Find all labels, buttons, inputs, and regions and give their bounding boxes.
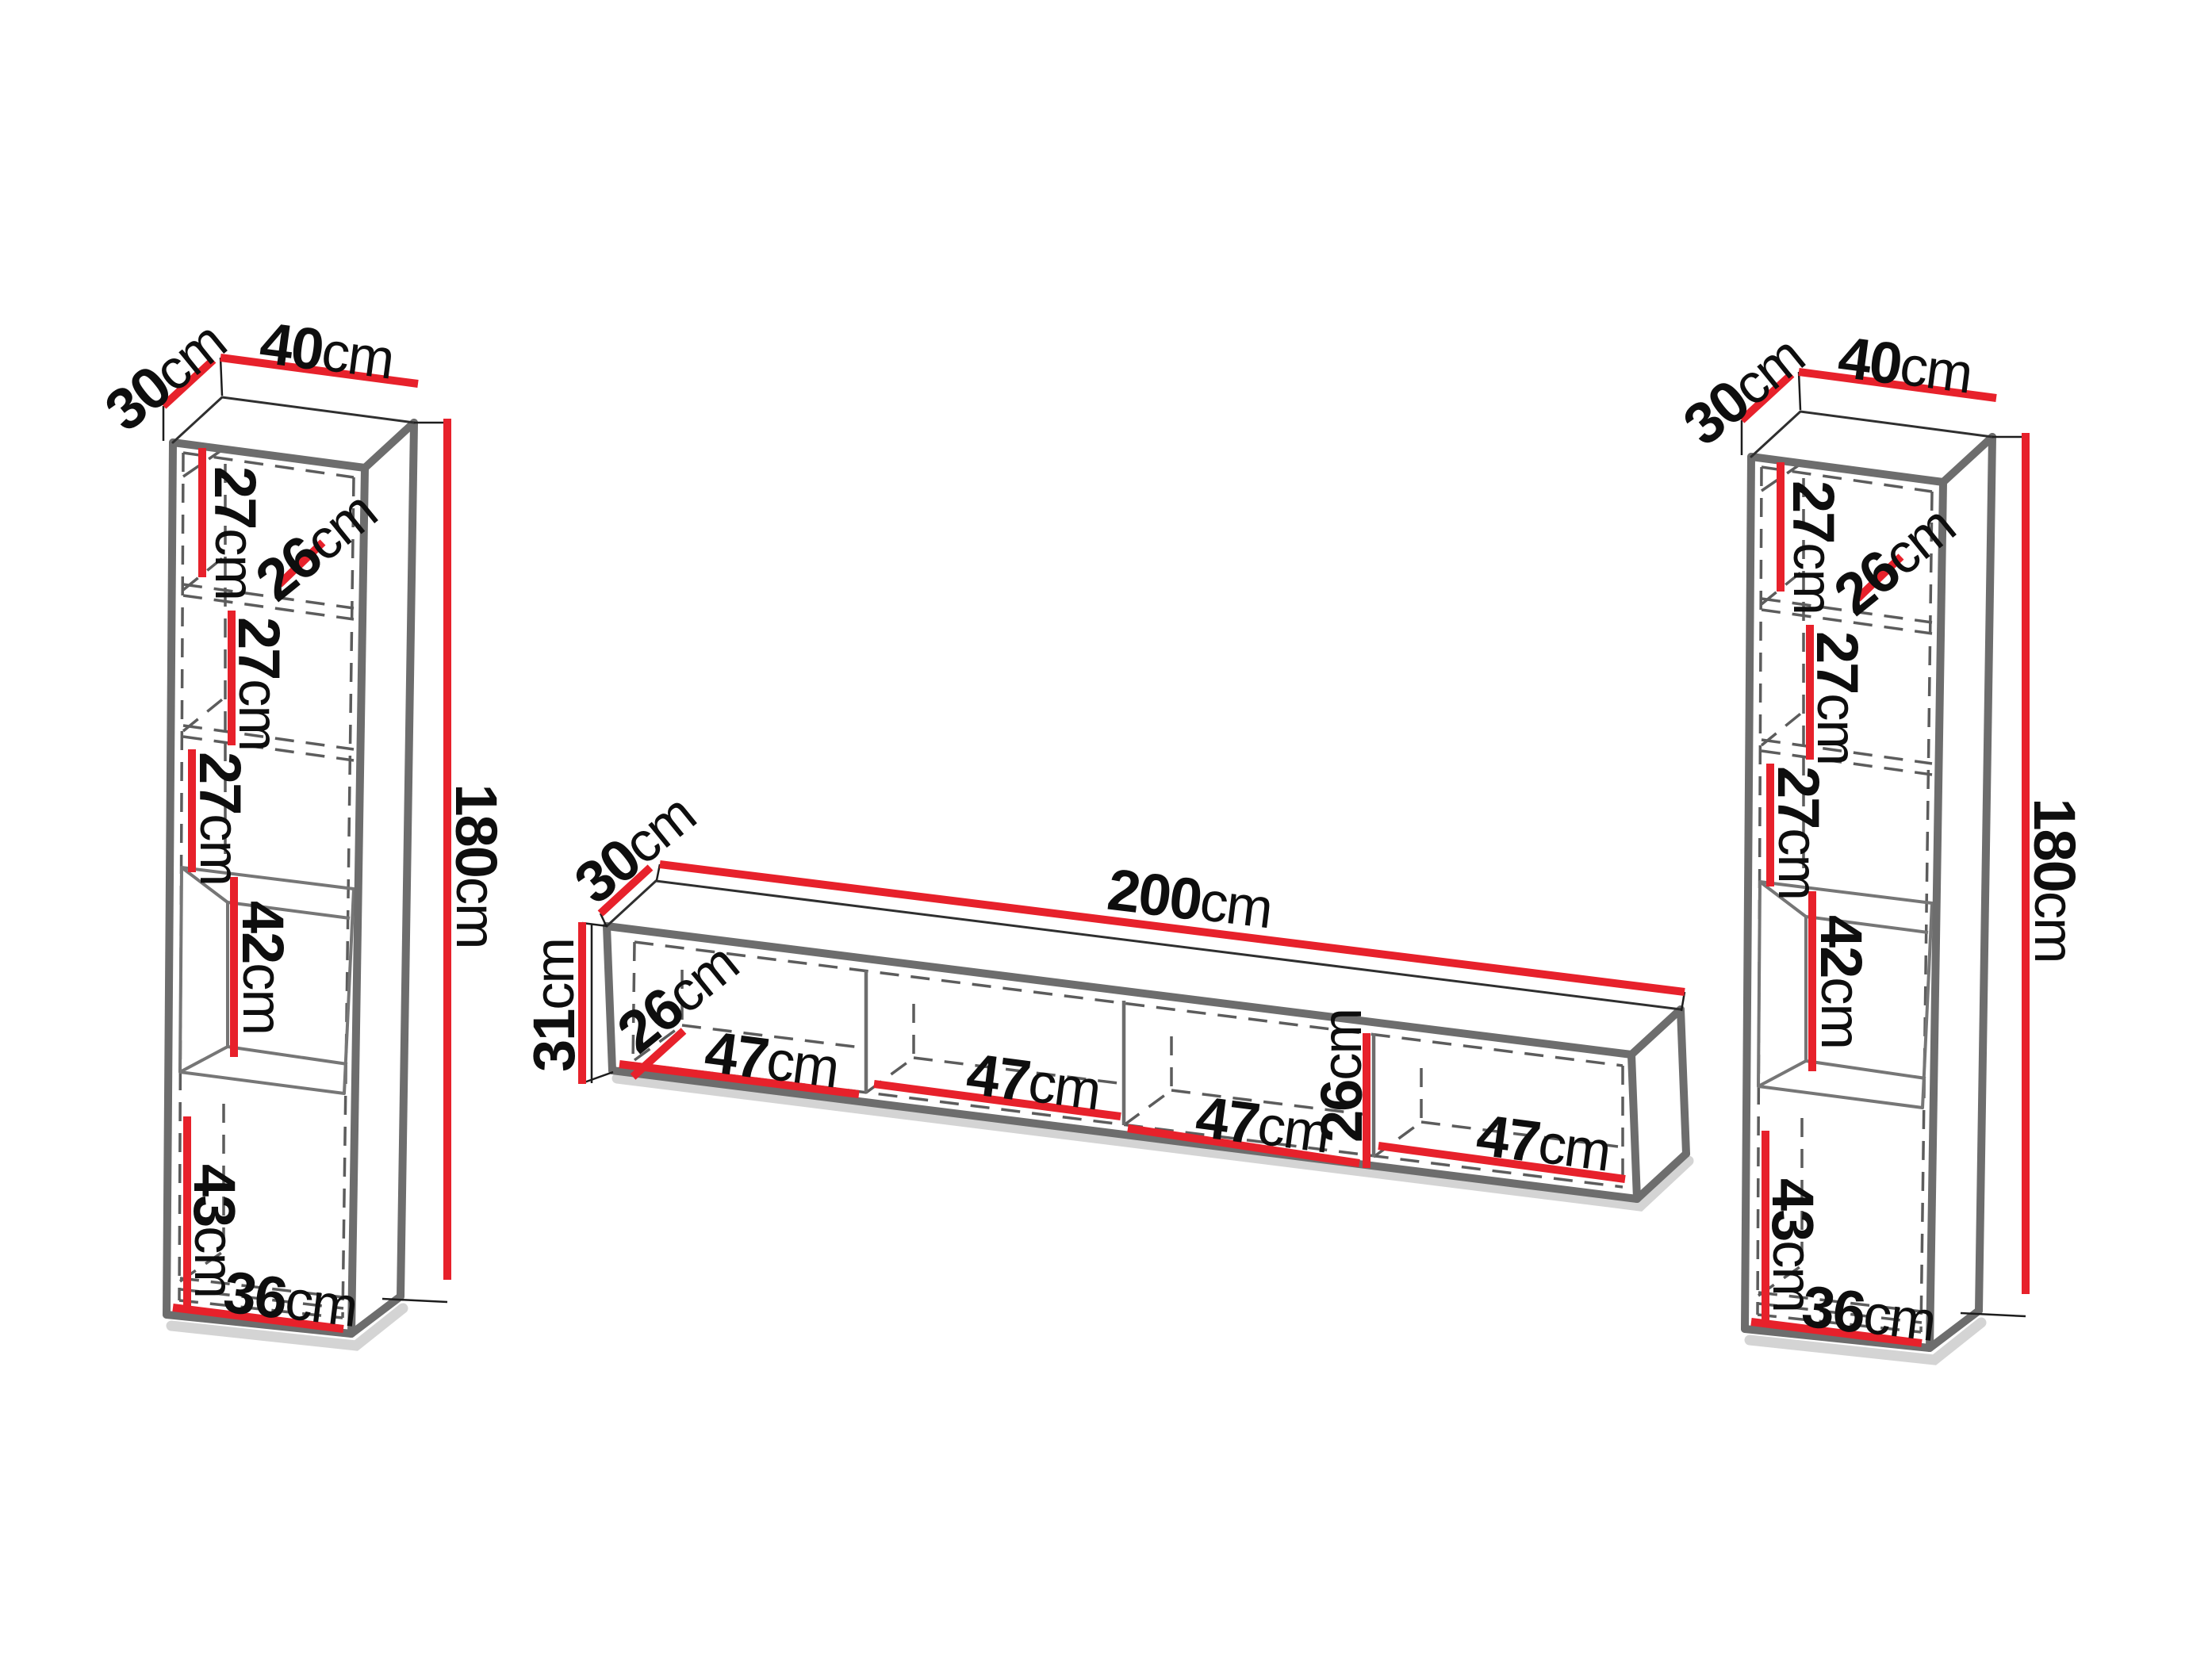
dim-left-second-shelf: 27cm [227,617,293,750]
dim-right-third-shelf: 27cm [1766,766,1832,899]
furniture-dimension-diagram: 30cm 40cm 180cm 27cm 26cm 27cm 27cm 42cm… [0,0,2212,1658]
dim-left-width: 40cm [256,309,397,392]
left-cabinet: 30cm 40cm 180cm 27cm 26cm 27cm 27cm 42cm… [93,308,510,1346]
dim-stand-width: 200cm [1104,856,1275,941]
tv-stand: 30cm 200cm 31cm 26cm 26cm 47cm 47cm 47cm… [521,781,1689,1206]
right-cabinet: 30cm 40cm 180cm 27cm 26cm 27cm 27cm 42cm… [1671,323,2088,1360]
dim-left-open-niche: 42cm [231,901,297,1034]
dim-right-width: 40cm [1834,324,1975,406]
dim-left-third-shelf: 27cm [188,752,254,885]
dim-left-height: 180cm [444,783,510,948]
dim-right-height: 180cm [2022,798,2088,962]
diagram-canvas: 30cm 40cm 180cm 27cm 26cm 27cm 27cm 42cm… [0,0,2212,1658]
dim-right-open-niche: 42cm [1809,915,1875,1048]
dim-right-second-shelf: 27cm [1805,631,1871,764]
dim-stand-height: 31cm [521,939,587,1072]
